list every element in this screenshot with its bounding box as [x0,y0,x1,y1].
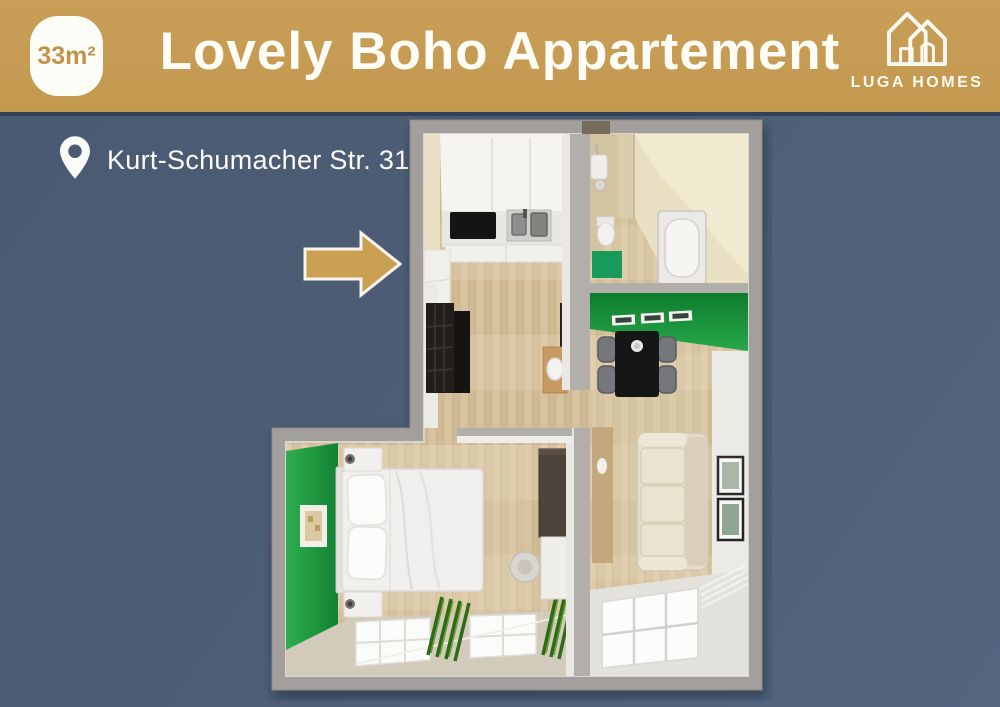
toilet [597,217,615,246]
bathroom-sink [591,155,607,179]
bath-mat [592,251,622,278]
bathroom-partition-wall [618,134,634,218]
listing-body: Kurt-Schumacher Str. 31 [0,116,1000,707]
floor-plan-image [260,115,772,706]
kitchen-sink [507,209,551,241]
cooktop [450,212,496,239]
map-pin-icon [60,136,90,184]
house-logo-icon [883,10,951,71]
sofa [637,433,708,570]
dining-table [615,331,659,397]
bathtub [658,211,706,285]
room-bathroom [590,134,748,285]
logo-text: LUGA HOMES [851,74,984,92]
nightstand-top [344,448,382,471]
sideboard-runner [592,427,613,563]
company-logo: LUGA HOMES [842,10,992,92]
bedroom-picture-frame [300,505,327,547]
header-banner: 33m² Lovely Boho Appartement LUGA HOMES [0,0,1000,112]
bed [336,467,483,593]
living-wall-frames [718,457,743,540]
bedroom-window-left [356,618,430,666]
hall-shelf [426,303,470,393]
desk-chair [510,552,540,582]
nightstand-bottom [344,592,382,617]
living-window [602,588,698,668]
